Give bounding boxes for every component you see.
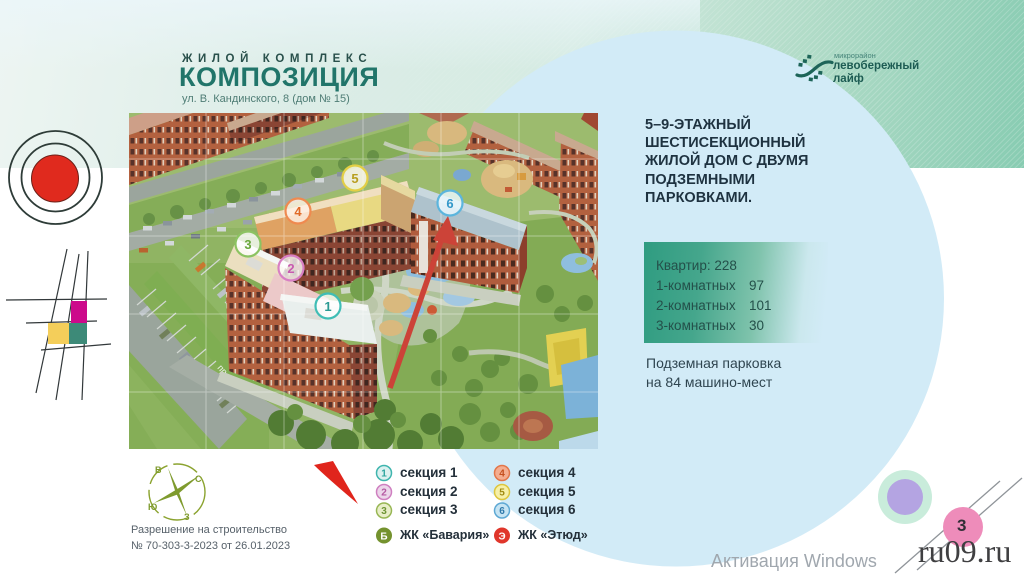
svg-text:Б: Б bbox=[380, 532, 387, 543]
svg-text:З: З bbox=[184, 512, 190, 522]
svg-text:1: 1 bbox=[324, 299, 331, 314]
svg-text:6: 6 bbox=[446, 196, 453, 211]
svg-text:Э: Э bbox=[498, 532, 505, 543]
svg-text:3: 3 bbox=[381, 506, 387, 517]
svg-text:3: 3 bbox=[244, 237, 251, 252]
svg-text:4: 4 bbox=[294, 204, 302, 219]
svg-text:4: 4 bbox=[499, 469, 505, 480]
svg-text:С: С bbox=[195, 474, 202, 484]
svg-text:2: 2 bbox=[287, 261, 294, 276]
svg-text:1: 1 bbox=[381, 469, 387, 480]
svg-text:В: В bbox=[155, 465, 162, 475]
svg-text:5: 5 bbox=[499, 488, 505, 499]
svg-text:Ю: Ю bbox=[148, 502, 157, 512]
svg-text:6: 6 bbox=[499, 506, 505, 517]
svg-text:5: 5 bbox=[351, 171, 358, 186]
svg-text:2: 2 bbox=[381, 488, 387, 499]
